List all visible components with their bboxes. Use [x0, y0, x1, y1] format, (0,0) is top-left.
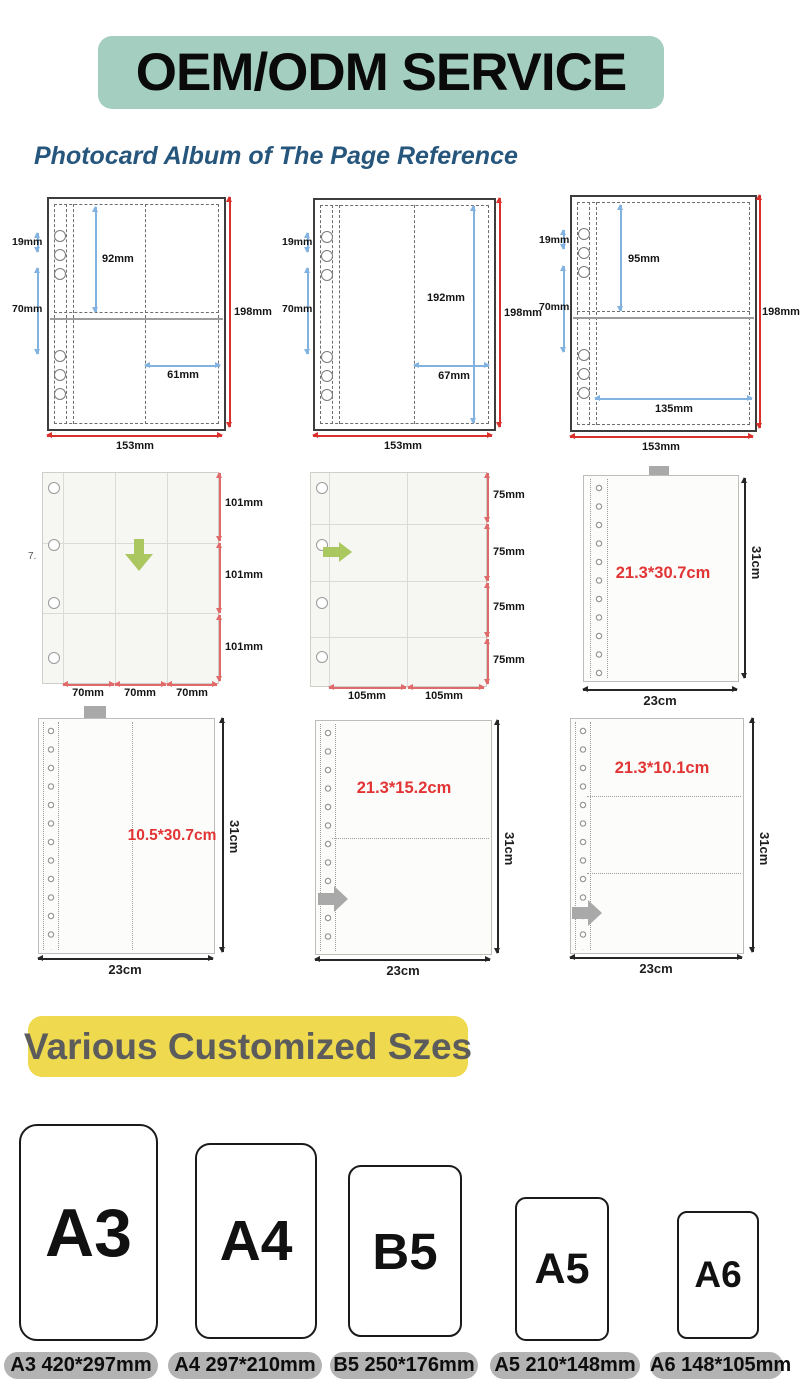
dim-label-hole-span: 70mm: [282, 303, 312, 315]
dim-label-cell-height: 75mm: [493, 489, 525, 501]
binder-hole: [316, 597, 328, 609]
right-arrow-icon: [588, 900, 602, 926]
dim-label-hole-gap: 19mm: [282, 236, 312, 248]
size-card-label: A6: [694, 1254, 741, 1296]
stray-list-number: 7.: [28, 551, 36, 562]
dim-label-pocket-width: 135mm: [655, 403, 693, 415]
dimension-arrow-pocket-height: [473, 206, 475, 423]
pocket-size-text: 21.3*10.1cm: [615, 759, 710, 778]
down-arrow-icon: [84, 706, 106, 718]
dimension-arrow-cell-height: [487, 524, 489, 581]
right-arrow-icon: [572, 907, 588, 919]
right-arrow-icon: [318, 893, 334, 905]
dimension-arrow-pocket-width: [414, 365, 489, 367]
dimension-arrow-sheet-height: [752, 718, 754, 952]
dim-label-cell-height: 75mm: [493, 654, 525, 666]
dimension-arrow-sheet-width: [315, 959, 490, 961]
grid-line-vertical: [407, 473, 408, 686]
grid-line-vertical: [167, 473, 168, 683]
binder-hole: [316, 482, 328, 494]
right-arrow-icon: [323, 547, 339, 557]
punch-hole-strip: [43, 722, 59, 950]
dimension-arrow-sheet-width: [570, 957, 742, 959]
dimension-arrow-cell-width: [329, 687, 406, 689]
dim-label-hole-span: 70mm: [539, 301, 569, 313]
dimension-arrow-sheet-width: [583, 689, 737, 691]
pocket-size-text: 21.3*15.2cm: [357, 779, 452, 798]
pocket-divider-horizontal: [587, 796, 741, 797]
grid-line-horizontal: [311, 524, 486, 525]
size-card-a3: A3: [19, 1124, 158, 1341]
dimension-arrow-pocket-height: [620, 205, 622, 311]
binder-hole: [321, 389, 333, 401]
sizes-section-title: Various Customized Szes: [28, 1016, 468, 1077]
oem-odm-banner: OEM/ODM SERVICE: [98, 36, 664, 109]
pocket-divider-vertical: [414, 205, 415, 424]
dim-label-page-height: 198mm: [234, 306, 272, 318]
pocket-size-text: 10.5*30.7cm: [128, 827, 217, 845]
dim-label-cell-height: 101mm: [225, 497, 263, 509]
binder-hole: [54, 369, 66, 381]
dimension-arrow-page-width: [47, 435, 222, 437]
punch-hole-strip: [590, 479, 608, 678]
grid-line-vertical: [115, 473, 116, 683]
dimension-arrow-page-width: [313, 435, 492, 437]
size-spec-badge-b5: B5 250*176mm: [330, 1352, 478, 1379]
binder-hole: [321, 370, 333, 382]
right-arrow-icon: [334, 886, 348, 912]
page-title: Photocard Album of The Page Reference: [34, 142, 518, 171]
binder-hole: [54, 249, 66, 261]
dimension-arrow-sheet-height: [222, 718, 224, 952]
dimension-arrow-sheet-height: [497, 720, 499, 953]
dim-label-sheet-width: 23cm: [386, 963, 419, 978]
size-card-a4: A4: [195, 1143, 317, 1339]
binder-hole: [54, 388, 66, 400]
binding-edge-lines: [66, 204, 74, 424]
dimension-arrow-cell-height: [219, 473, 221, 541]
dimension-arrow-cell-width: [115, 684, 166, 686]
binding-line: [63, 473, 64, 683]
binder-hole: [48, 597, 60, 609]
pocket-opening-line: [573, 317, 754, 319]
binder-hole: [321, 250, 333, 262]
dim-label-hole-gap: 19mm: [539, 234, 569, 246]
size-spec-badge-a5: A5 210*148mm: [490, 1352, 640, 1379]
dimension-arrow-cell-height: [487, 583, 489, 637]
dimension-arrow-cell-height: [487, 473, 489, 522]
dim-label-pocket-width: 67mm: [438, 370, 470, 382]
binder-hole: [578, 349, 590, 361]
dimension-arrow-sheet-width: [38, 958, 213, 960]
dim-label-page-height: 198mm: [762, 306, 800, 318]
dim-label-cell-width: 70mm: [176, 687, 208, 699]
dim-label-sheet-height: 31cm: [749, 546, 764, 579]
dim-label-page-width: 153mm: [384, 440, 422, 452]
dimension-arrow-cell-height: [487, 639, 489, 684]
binder-page-2pocket-horizontal: 95mm 135mm: [570, 195, 757, 432]
dim-label-hole-span: 70mm: [12, 303, 42, 315]
pocket-size-text: 21.3*30.7cm: [616, 564, 711, 583]
binder-hole: [54, 230, 66, 242]
dimension-arrow-cell-width: [63, 684, 114, 686]
dim-label-sheet-height: 31cm: [757, 832, 772, 865]
grid-line-horizontal: [311, 637, 486, 638]
binder-hole: [54, 350, 66, 362]
size-spec-badge-a4: A4 297*210mm: [168, 1352, 322, 1379]
dimension-arrow-cell-width: [408, 687, 484, 689]
binding-line: [329, 473, 330, 686]
dim-label-page-width: 153mm: [642, 441, 680, 453]
product-infographic: OEM/ODM SERVICE Photocard Album of The P…: [0, 0, 800, 1398]
binder-hole: [321, 269, 333, 281]
pocket-divider-vertical: [145, 204, 146, 424]
dim-label-cell-height: 101mm: [225, 641, 263, 653]
grid-line-horizontal: [43, 543, 218, 544]
dim-label-cell-width: 105mm: [348, 690, 386, 702]
grid-line-horizontal: [43, 613, 218, 614]
size-card-label: B5: [372, 1222, 437, 1281]
dim-label-pocket-width: 61mm: [167, 369, 199, 381]
dim-label-pocket-height: 192mm: [427, 292, 465, 304]
dimension-arrow-pocket-height: [95, 207, 97, 312]
dim-label-page-height: 198mm: [504, 307, 542, 319]
binder-hole: [578, 368, 590, 380]
binder-hole: [54, 268, 66, 280]
dimension-arrow-cell-height: [219, 615, 221, 681]
binder-hole: [48, 652, 60, 664]
dim-label-pocket-height: 95mm: [628, 253, 660, 265]
dim-label-sheet-width: 23cm: [643, 693, 676, 708]
banner-title: OEM/ODM SERVICE: [136, 42, 627, 103]
dim-label-sheet-width: 23cm: [108, 962, 141, 977]
binding-edge-lines: [332, 205, 340, 424]
sheet-protector-2row: [315, 720, 492, 955]
dim-label-sheet-height: 31cm: [227, 820, 242, 853]
sizes-title-text: Various Customized Szes: [24, 1026, 472, 1068]
pocket-divider-horizontal: [54, 312, 219, 313]
dim-label-sheet-width: 23cm: [639, 961, 672, 976]
right-arrow-icon: [339, 542, 352, 562]
dim-label-cell-width: 70mm: [72, 687, 104, 699]
dimension-arrow-pocket-width: [145, 365, 220, 367]
down-arrow-icon: [134, 539, 144, 554]
dimension-arrow-page-height: [499, 198, 501, 427]
pocket-opening-line: [50, 318, 223, 320]
binder-hole: [578, 228, 590, 240]
size-card-a6: A6: [677, 1211, 759, 1339]
photo-page-9pocket: [42, 472, 219, 684]
binder-page-2pocket-vertical: 192mm 67mm: [313, 198, 496, 431]
dim-label-page-width: 153mm: [116, 440, 154, 452]
binding-edge-lines: [589, 202, 597, 425]
pocket-divider-horizontal: [577, 311, 750, 312]
binder-hole: [578, 266, 590, 278]
dim-label-cell-height: 75mm: [493, 601, 525, 613]
inner-dashed-border: [54, 204, 219, 424]
size-spec-badge-a3: A3 420*297mm: [4, 1352, 158, 1379]
dimension-arrow-page-width: [570, 436, 753, 438]
dim-label-sheet-height: 31cm: [502, 832, 517, 865]
inner-dashed-border: [577, 202, 750, 425]
binder-hole: [316, 651, 328, 663]
binder-hole: [578, 247, 590, 259]
dim-label-cell-width: 105mm: [425, 690, 463, 702]
pocket-divider-horizontal: [332, 838, 489, 839]
down-arrow-icon: [125, 554, 153, 571]
dimension-arrow-cell-height: [219, 543, 221, 613]
size-card-b5: B5: [348, 1165, 462, 1337]
binder-hole: [48, 482, 60, 494]
binder-hole: [321, 351, 333, 363]
dimension-arrow-sheet-height: [744, 478, 746, 678]
size-card-a5: A5: [515, 1197, 609, 1341]
binder-hole: [321, 231, 333, 243]
dim-label-cell-height: 101mm: [225, 569, 263, 581]
inner-dashed-border: [320, 205, 489, 424]
dim-label-cell-height: 75mm: [493, 546, 525, 558]
grid-line-horizontal: [311, 581, 486, 582]
dimension-arrow-cell-width: [167, 684, 217, 686]
size-card-label: A3: [45, 1194, 132, 1272]
size-card-label: A4: [220, 1208, 293, 1274]
dim-label-hole-gap: 19mm: [12, 236, 42, 248]
dimension-arrow-pocket-width: [595, 398, 752, 400]
binder-hole: [578, 387, 590, 399]
photo-page-8pocket: [310, 472, 487, 687]
dimension-arrow-page-height: [759, 195, 761, 428]
pocket-divider-horizontal: [587, 873, 741, 874]
size-card-label: A5: [535, 1245, 590, 1294]
dim-label-cell-width: 70mm: [124, 687, 156, 699]
binder-hole: [48, 539, 60, 551]
size-spec-badge-a6: A6 148*105mm: [650, 1352, 783, 1379]
binder-page-4pocket: 92mm 61mm: [47, 197, 226, 431]
dimension-arrow-page-height: [229, 197, 231, 427]
dim-label-pocket-height: 92mm: [102, 253, 134, 265]
